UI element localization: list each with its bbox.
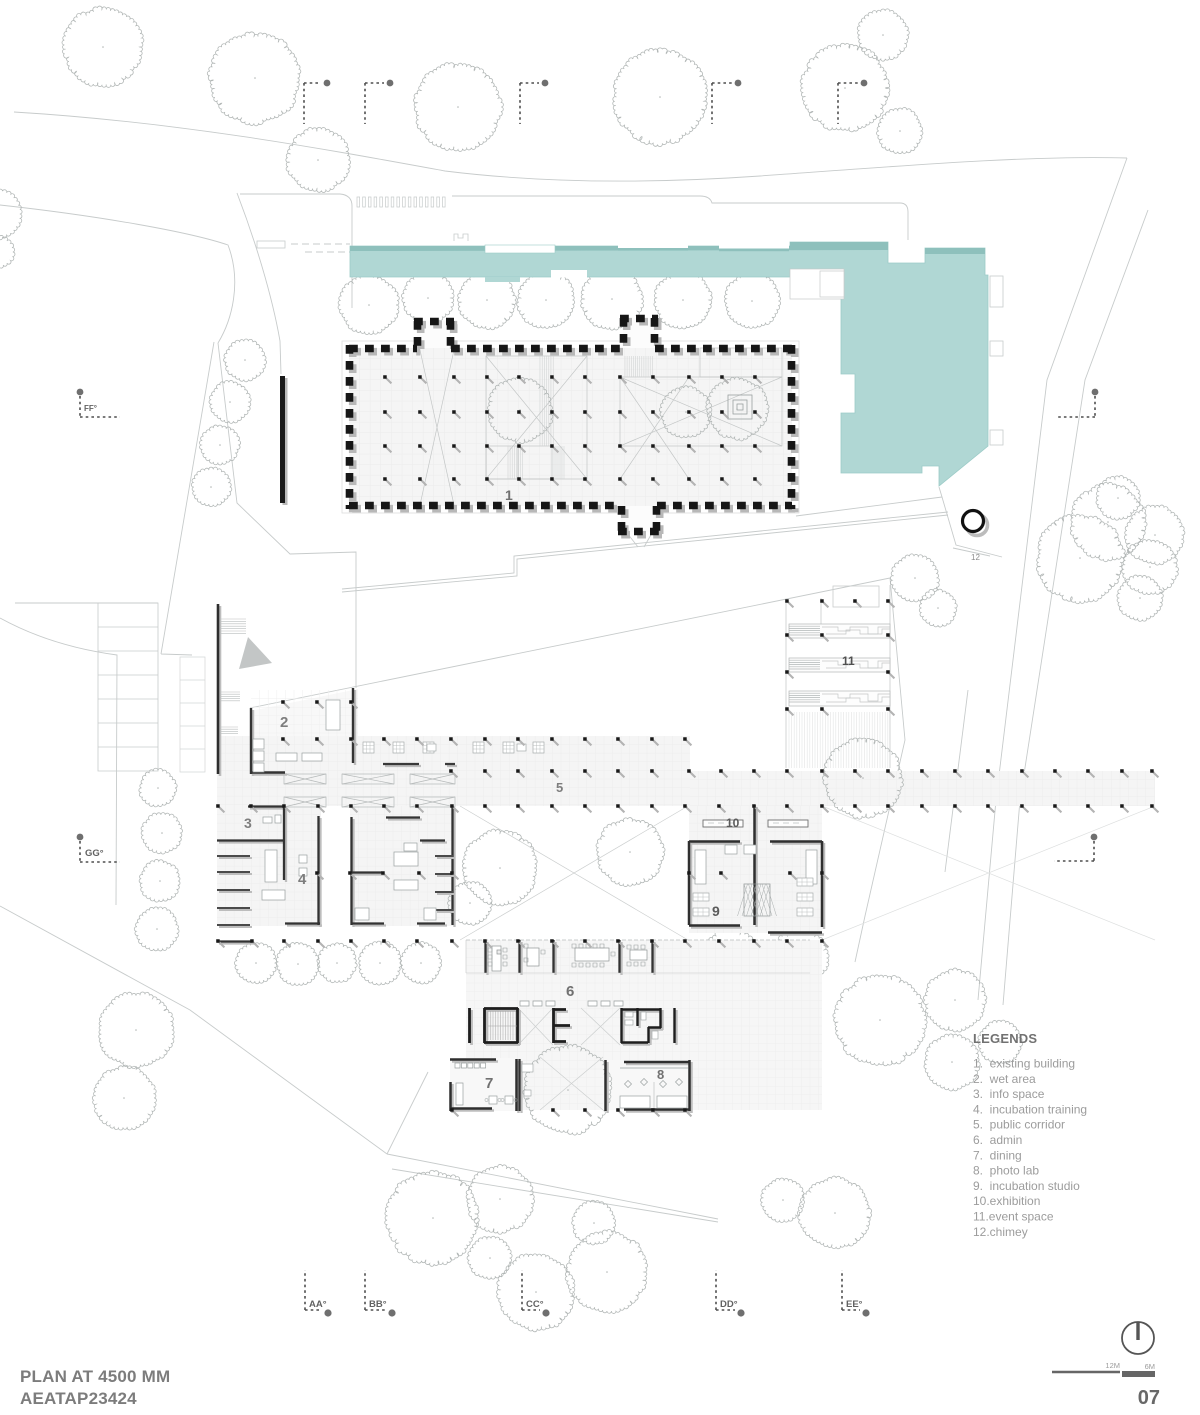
svg-text:6. admin: 6. admin bbox=[973, 1133, 1022, 1147]
svg-text:FF°: FF° bbox=[84, 404, 97, 413]
svg-text:DD°: DD° bbox=[720, 1299, 738, 1310]
svg-text:AEATAP23424: AEATAP23424 bbox=[20, 1389, 137, 1408]
svg-text:12M: 12M bbox=[1105, 1361, 1120, 1370]
svg-text:4. incubation training: 4. incubation training bbox=[973, 1102, 1087, 1116]
svg-text:PLAN AT 4500 MM: PLAN AT 4500 MM bbox=[20, 1367, 170, 1386]
svg-text:10: 10 bbox=[726, 816, 740, 830]
svg-text:4: 4 bbox=[298, 871, 307, 888]
svg-text:9: 9 bbox=[712, 903, 720, 919]
svg-text:11.event space: 11.event space bbox=[973, 1210, 1054, 1224]
svg-text:EE°: EE° bbox=[846, 1299, 863, 1310]
svg-text:5. public corridor: 5. public corridor bbox=[973, 1118, 1065, 1132]
svg-text:GG°: GG° bbox=[85, 848, 104, 859]
svg-text:LEGENDS: LEGENDS bbox=[973, 1031, 1037, 1046]
svg-text:BB°: BB° bbox=[369, 1299, 387, 1310]
svg-text:7: 7 bbox=[485, 1075, 493, 1092]
svg-text:1: 1 bbox=[505, 487, 513, 503]
svg-text:10.exhibition: 10.exhibition bbox=[973, 1194, 1040, 1208]
svg-text:2. wet area: 2. wet area bbox=[973, 1072, 1036, 1086]
svg-text:6: 6 bbox=[566, 983, 574, 1000]
svg-text:07: 07 bbox=[1138, 1387, 1160, 1409]
svg-text:12.chimey: 12.chimey bbox=[973, 1225, 1028, 1239]
svg-text:5: 5 bbox=[556, 780, 563, 795]
svg-text:8: 8 bbox=[657, 1067, 664, 1082]
svg-text:12: 12 bbox=[971, 553, 980, 562]
svg-text:AA°: AA° bbox=[309, 1299, 327, 1310]
svg-text:2: 2 bbox=[280, 714, 288, 731]
svg-text:7. dining: 7. dining bbox=[973, 1148, 1022, 1162]
svg-text:9. incubation studio: 9. incubation studio bbox=[973, 1179, 1080, 1193]
svg-text:CC°: CC° bbox=[526, 1299, 544, 1310]
svg-text:3. info space: 3. info space bbox=[973, 1087, 1045, 1101]
svg-text:3: 3 bbox=[244, 815, 252, 831]
svg-text:1. existing building: 1. existing building bbox=[973, 1057, 1075, 1071]
svg-text:6M: 6M bbox=[1145, 1362, 1155, 1371]
svg-text:8. photo lab: 8. photo lab bbox=[973, 1164, 1039, 1178]
svg-text:11: 11 bbox=[842, 654, 855, 668]
